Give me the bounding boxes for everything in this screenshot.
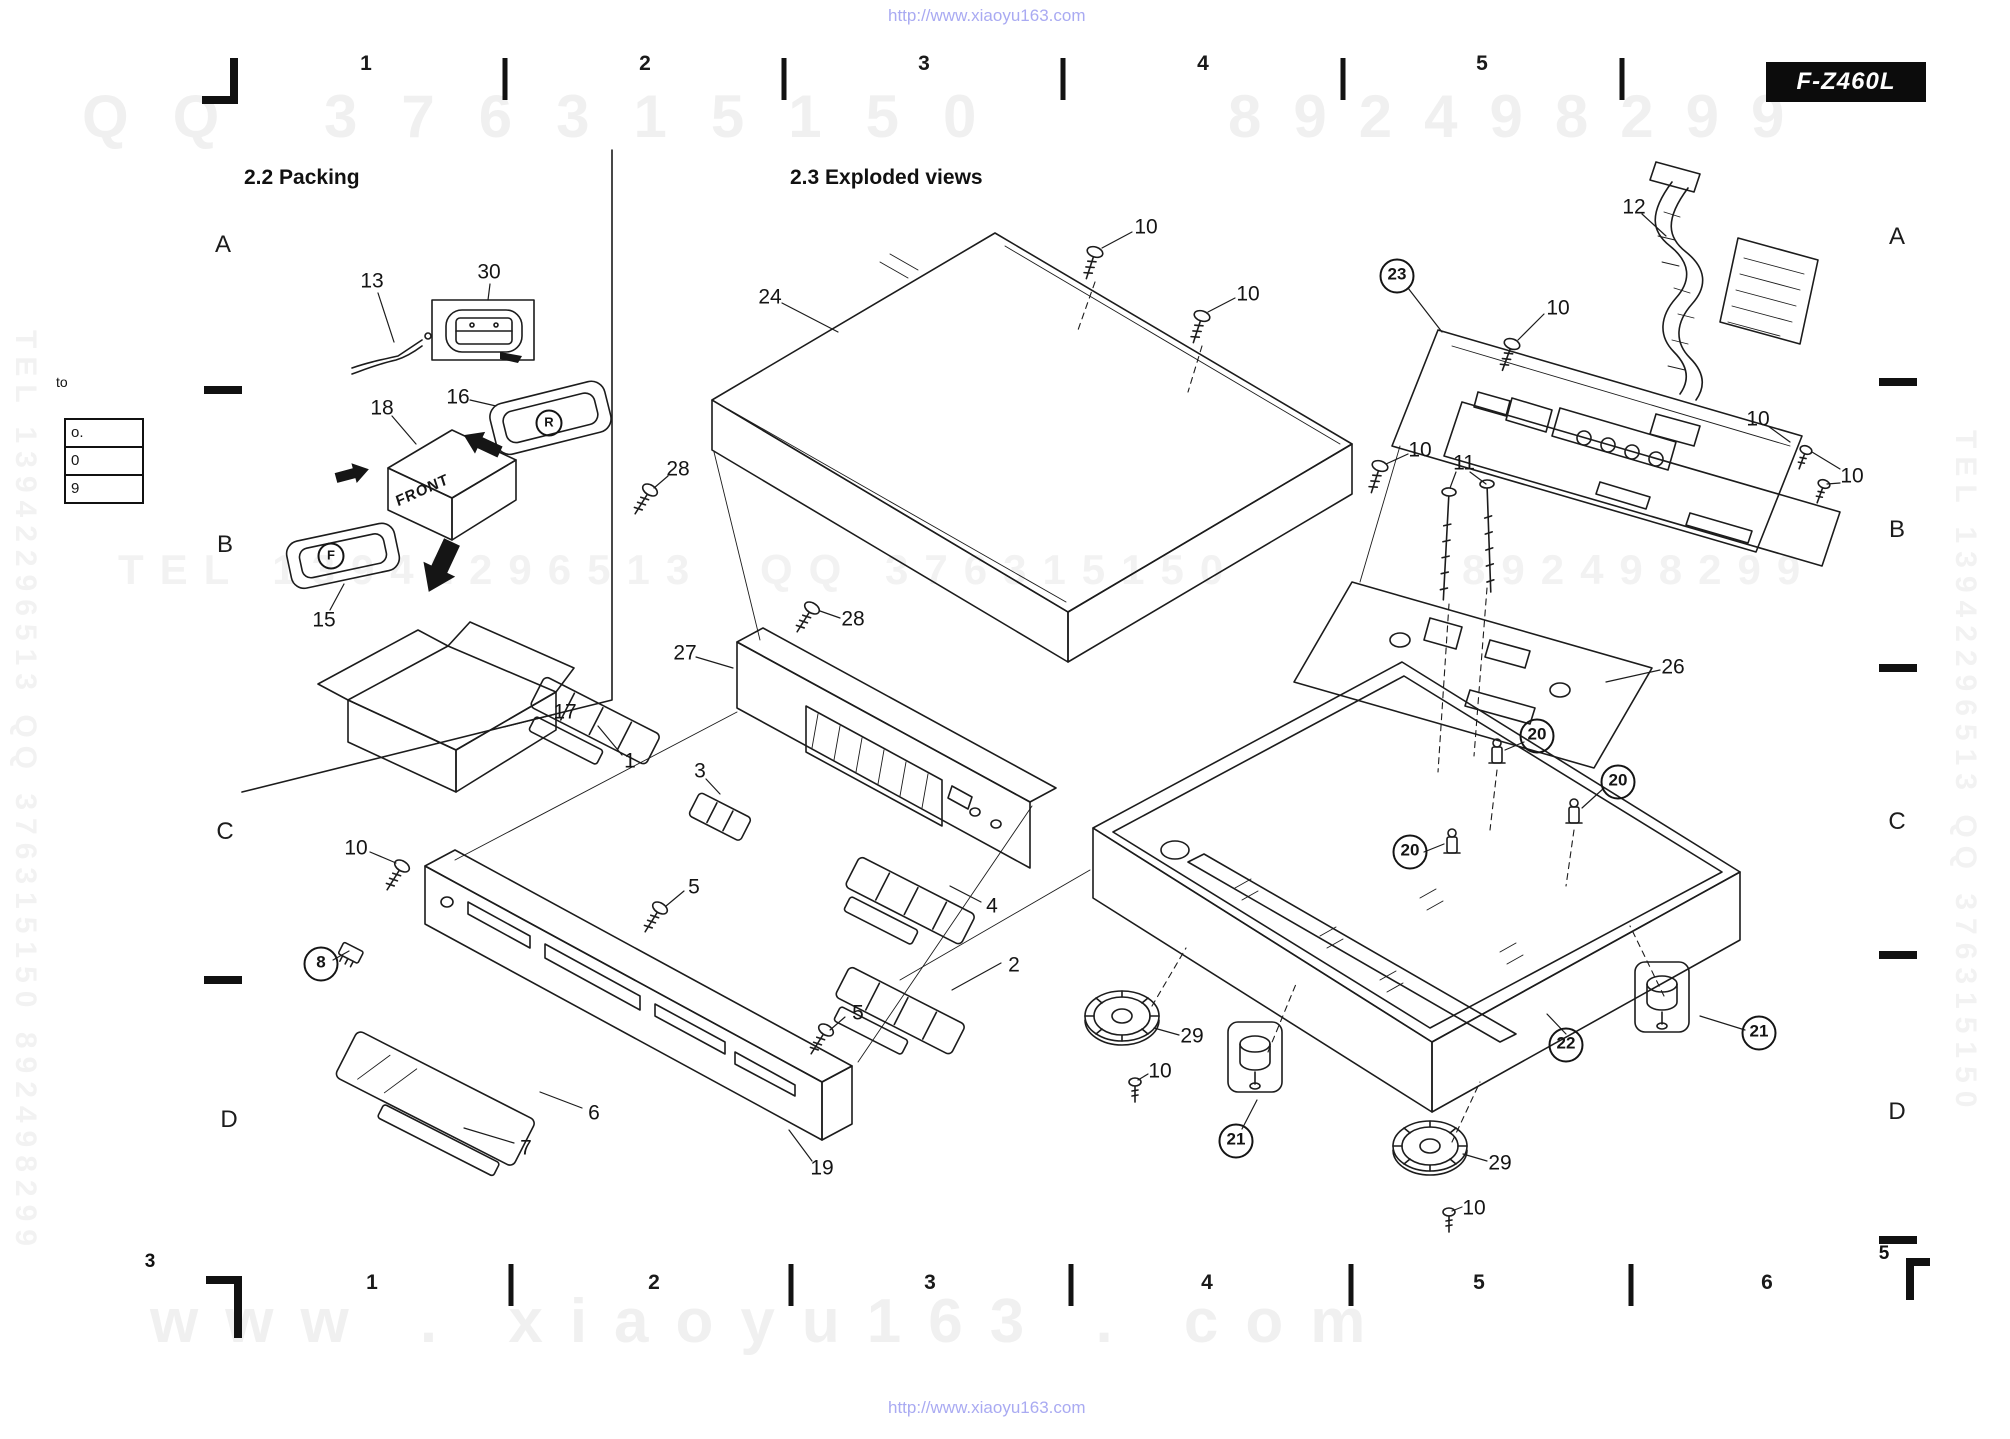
grid-letter: D <box>220 1106 237 1134</box>
margin-table: o.09 <box>64 418 144 504</box>
ruler-number: 2 <box>648 1271 660 1295</box>
part-number-label: 20 <box>1520 719 1555 754</box>
crop-mark <box>202 96 238 104</box>
part-number-label: 12 <box>1622 197 1645 218</box>
part-number-label: 11 <box>1453 453 1475 474</box>
grid-dash <box>1879 951 1917 959</box>
page-number-right: 5 <box>1879 1243 1890 1265</box>
part-number-label: 10 <box>1408 440 1431 461</box>
part-number-label: 5 <box>852 1003 864 1024</box>
grid-letter: C <box>216 818 233 846</box>
ruler-tick <box>782 58 787 100</box>
part-number-label: 10 <box>1462 1198 1485 1219</box>
part-number-label: 27 <box>673 643 696 664</box>
part-number-label: 28 <box>666 459 689 480</box>
grid-letter: A <box>1889 223 1905 251</box>
grid-letter: D <box>1888 1098 1905 1126</box>
part-number-label: 20 <box>1601 765 1636 800</box>
page-number-left: 3 <box>145 1251 156 1273</box>
part-number-label: 10 <box>1546 298 1569 319</box>
crop-mark <box>234 1276 242 1338</box>
part-number-label: 16 <box>446 387 469 408</box>
ruler-tick <box>1061 58 1066 100</box>
part-number-label: 5 <box>688 877 700 898</box>
ruler-tick <box>509 1264 514 1306</box>
grid-dash <box>1879 378 1917 386</box>
ruler-tick <box>503 58 508 100</box>
ruler-number: 1 <box>360 52 372 76</box>
part-number-label: 15 <box>312 610 335 631</box>
section-title-exploded: 2.3 Exploded views <box>790 166 983 190</box>
ruler-tick <box>1349 1264 1354 1306</box>
front-cap-letter: F <box>318 543 345 570</box>
ruler-tick <box>1069 1264 1074 1306</box>
part-number-label: 13 <box>360 271 383 292</box>
part-number-label: 6 <box>588 1103 600 1124</box>
part-number-label: 26 <box>1661 657 1684 678</box>
margin-note-to: to <box>56 374 68 390</box>
model-badge: F-Z460L <box>1766 62 1926 102</box>
ruler-number: 3 <box>924 1271 936 1295</box>
grid-letter: A <box>215 231 231 259</box>
margin-table-row: 0 <box>66 448 142 476</box>
part-number-label: 23 <box>1380 259 1415 294</box>
exploded-view-art <box>0 0 2010 1439</box>
part-number-label: 8 <box>304 947 339 982</box>
ruler-number: 5 <box>1476 52 1488 76</box>
grid-letter: B <box>217 531 233 559</box>
part-number-label: 10 <box>1148 1061 1171 1082</box>
part-number-label: 10 <box>1134 217 1157 238</box>
part-number-label: 28 <box>841 609 864 630</box>
part-number-label: 17 <box>553 702 576 723</box>
part-number-label: 10 <box>1236 284 1259 305</box>
part-number-label: 3 <box>694 761 706 782</box>
part-number-label: 18 <box>370 398 393 419</box>
ruler-number: 5 <box>1473 1271 1485 1295</box>
section-title-packing: 2.2 Packing <box>244 166 360 190</box>
grid-letter: C <box>1888 808 1905 836</box>
part-number-label: 21 <box>1219 1124 1254 1159</box>
ruler-number: 3 <box>918 52 930 76</box>
margin-table-row: o. <box>66 420 142 448</box>
part-number-label: 4 <box>986 896 998 917</box>
ruler-tick <box>1629 1264 1634 1306</box>
part-number-label: 29 <box>1180 1026 1203 1047</box>
grid-dash <box>1879 664 1917 672</box>
ruler-number: 4 <box>1201 1271 1213 1295</box>
part-number-label: 29 <box>1488 1153 1511 1174</box>
part-number-label: 10 <box>1746 409 1769 430</box>
part-number-label: 10 <box>1840 466 1863 487</box>
part-number-label: 10 <box>344 838 367 859</box>
grid-dash <box>204 386 242 394</box>
grid-dash <box>204 976 242 984</box>
part-number-label: 22 <box>1549 1028 1584 1063</box>
service-manual-page: http://www.xiaoyu163.com http://www.xiao… <box>0 0 2010 1439</box>
ruler-tick <box>1620 58 1625 100</box>
grid-letter: B <box>1889 516 1905 544</box>
ruler-number: 4 <box>1197 52 1209 76</box>
ruler-tick <box>1341 58 1346 100</box>
part-number-label: 7 <box>520 1138 532 1159</box>
margin-table-row: 9 <box>66 476 142 502</box>
part-number-label: 19 <box>810 1158 833 1179</box>
part-number-label: 1 <box>624 751 636 772</box>
part-number-label: 24 <box>758 287 781 308</box>
ruler-number: 6 <box>1761 1271 1773 1295</box>
ruler-tick <box>789 1264 794 1306</box>
ruler-number: 2 <box>639 52 651 76</box>
part-number-label: 2 <box>1008 955 1020 976</box>
ruler-number: 1 <box>366 1271 378 1295</box>
part-number-label: 20 <box>1393 835 1428 870</box>
part-number-label: 21 <box>1742 1016 1777 1051</box>
crop-mark <box>1906 1258 1930 1266</box>
right-cap-letter: R <box>536 410 563 437</box>
part-number-label: 30 <box>477 262 500 283</box>
